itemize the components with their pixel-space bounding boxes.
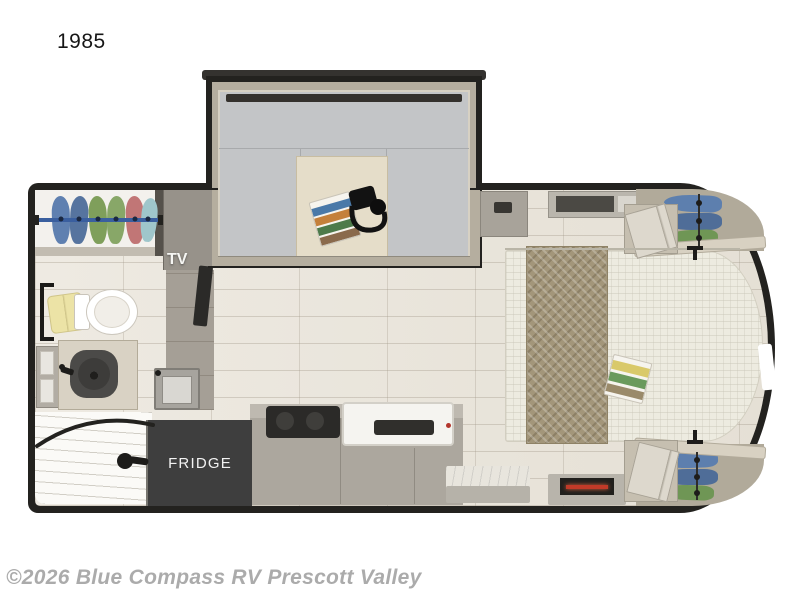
faucet-icon <box>59 364 65 370</box>
closet-rod-cap <box>34 215 39 225</box>
floorplan-image: 1985 TV <box>0 0 800 600</box>
reading-light-icon <box>687 246 703 444</box>
detail-overlay <box>0 0 800 600</box>
faucet-icon <box>155 370 161 376</box>
closet-rod-cap <box>158 215 163 225</box>
hanger-hooks <box>694 457 700 496</box>
shower-curtain-rod <box>37 421 153 446</box>
watermark: ©2026 Blue Compass RV Prescott Valley <box>6 566 422 590</box>
